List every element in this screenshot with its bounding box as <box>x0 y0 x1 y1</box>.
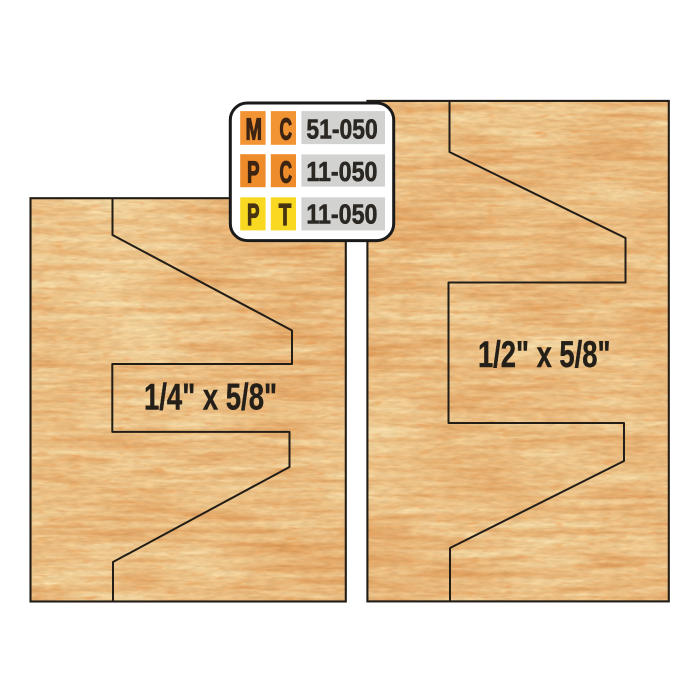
svg-text:P: P <box>247 198 260 232</box>
svg-text:1/4" x 5/8": 1/4" x 5/8" <box>144 376 277 418</box>
svg-text:11-050: 11-050 <box>306 156 377 187</box>
svg-text:P: P <box>247 156 260 190</box>
svg-text:C: C <box>280 112 293 146</box>
svg-text:T: T <box>279 198 292 232</box>
svg-text:M: M <box>245 112 262 146</box>
svg-text:51-050: 51-050 <box>306 114 377 145</box>
svg-text:11-050: 11-050 <box>306 199 377 230</box>
svg-text:1/2" x 5/8": 1/2" x 5/8" <box>478 333 611 375</box>
svg-text:C: C <box>280 156 293 190</box>
